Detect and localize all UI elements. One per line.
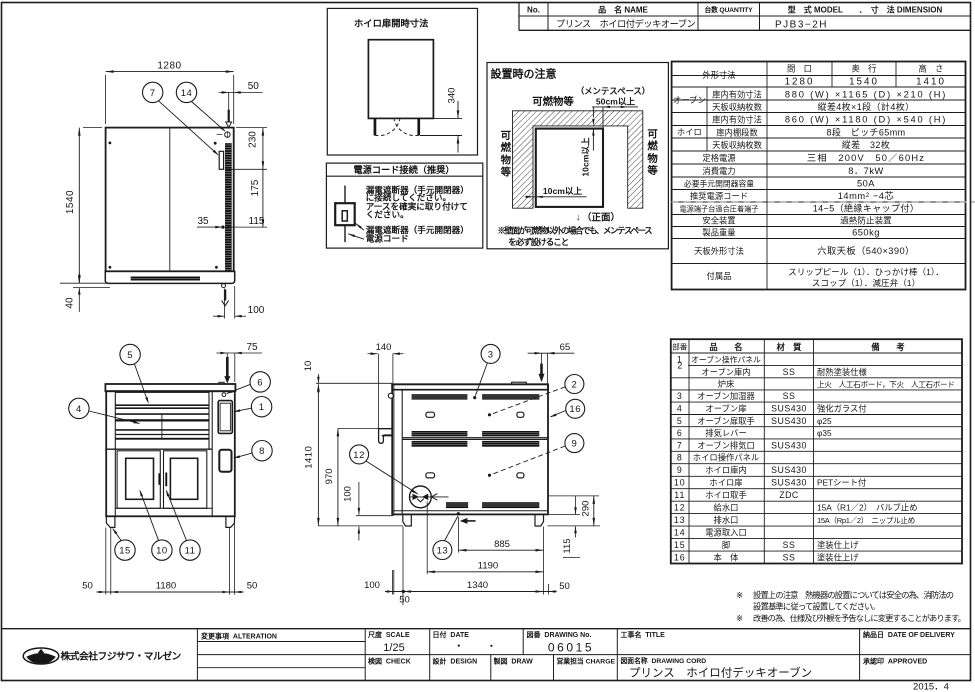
svg-text:プリンス ホイロ付デッキオーブン: プリンス ホイロ付デッキオーブン: [629, 666, 812, 680]
svg-text:等: 等: [500, 166, 512, 179]
svg-text:1540: 1540: [65, 190, 76, 214]
svg-text:5: 5: [677, 416, 683, 426]
svg-text:天板収納枚数: 天板収納枚数: [712, 140, 762, 150]
svg-text:175: 175: [250, 179, 261, 196]
svg-text:可燃物等: 可燃物等: [532, 95, 574, 108]
svg-text:13: 13: [674, 515, 686, 525]
svg-text:燃: 燃: [647, 140, 658, 153]
svg-text:ホイロ操作パネル: ホイロ操作パネル: [693, 453, 759, 463]
svg-text:SS: SS: [783, 540, 796, 550]
svg-text:可: 可: [647, 129, 658, 141]
svg-text:↓: ↓: [576, 213, 581, 224]
svg-text:図番 DRAWING No.: 図番 DRAWING No.: [527, 630, 592, 639]
svg-text:100: 100: [248, 305, 265, 316]
svg-text:1280: 1280: [157, 60, 181, 71]
svg-text:50: 50: [82, 581, 93, 592]
svg-text:材 質: 材 質: [776, 342, 803, 352]
svg-text:1410: 1410: [916, 77, 946, 88]
svg-text:工事名 TITLE: 工事名 TITLE: [621, 630, 666, 639]
svg-text:等: 等: [646, 164, 658, 177]
svg-text:日付 DATE: 日付 DATE: [433, 630, 470, 639]
svg-text:消費電力: 消費電力: [702, 166, 735, 176]
svg-text:物: 物: [501, 153, 512, 166]
svg-text:必要手元開閉器容量: 必要手元開閉器容量: [684, 179, 754, 189]
svg-text:ホイロ扉: ホイロ扉: [709, 478, 742, 488]
svg-text:SS: SS: [783, 367, 796, 377]
svg-text:部番: 部番: [672, 342, 688, 352]
svg-text:140: 140: [376, 342, 392, 353]
svg-text:φ25: φ25: [817, 416, 832, 426]
svg-text:営業担当 CHARGE: 営業担当 CHARGE: [557, 657, 616, 666]
svg-text:上火 人工石ボード，下火 人工石ボード: 上火 人工石ボード，下火 人工石ボード: [817, 380, 954, 389]
svg-text:8段 ピッチ65mm: 8段 ピッチ65mm: [826, 127, 905, 138]
svg-text:14: 14: [181, 88, 193, 99]
svg-text:プリンス ホイロ付デッキオーブン: プリンス ホイロ付デッキオーブン: [556, 18, 695, 29]
svg-text:φ35: φ35: [817, 428, 832, 438]
svg-text:PETシート付: PETシート付: [817, 478, 866, 488]
svg-text:860 (W) ×1180 (D) ×540 (H): 860 (W) ×1180 (D) ×540 (H): [785, 115, 947, 125]
svg-text:推奨電源コード: 推奨電源コード: [690, 191, 748, 201]
svg-text:230: 230: [248, 131, 259, 148]
svg-text:台数 QUANTITY: 台数 QUANTITY: [704, 5, 753, 14]
svg-text:本 体: 本 体: [714, 553, 740, 563]
svg-text:株式会社フジサワ・マルゼン: 株式会社フジサワ・マルゼン: [61, 650, 182, 663]
svg-text:75: 75: [246, 342, 258, 353]
svg-text:ください。: ください。: [366, 209, 409, 219]
svg-text:06015: 06015: [548, 641, 594, 655]
svg-text:115: 115: [249, 216, 265, 227]
svg-text:ホイロ庫内: ホイロ庫内: [705, 465, 747, 475]
svg-text:可: 可: [501, 130, 512, 142]
svg-text:10: 10: [674, 478, 686, 488]
svg-text:型 式 MODEL ． 寸 法 DIMENSION: 型 式 MODEL ． 寸 法 DIMENSION: [788, 5, 943, 15]
svg-text:六取天板（540×390）: 六取天板（540×390）: [817, 245, 914, 256]
svg-text:三相 200V 50／60Hz: 三相 200V 50／60Hz: [807, 152, 925, 163]
svg-text:付属品: 付属品: [707, 271, 732, 281]
svg-text:6: 6: [257, 377, 263, 388]
svg-text:電源コード: 電源コード: [366, 233, 409, 244]
svg-text:650kg: 650kg: [852, 228, 880, 238]
svg-text:設計 DESIGN: 設計 DESIGN: [433, 657, 478, 666]
svg-text:ホイロ扉開時寸法: ホイロ扉開時寸法: [354, 18, 428, 29]
svg-text:高 さ: 高 さ: [919, 64, 944, 74]
svg-text:15: 15: [674, 540, 686, 550]
svg-text:1410: 1410: [304, 446, 315, 469]
svg-text:オーブン扉取手: オーブン扉取手: [697, 416, 755, 426]
svg-text:塗装仕上げ: 塗装仕上げ: [817, 553, 859, 563]
svg-text:燃: 燃: [501, 141, 512, 154]
svg-text:340: 340: [447, 88, 458, 104]
svg-text:庫内有効寸法: 庫内有効寸法: [712, 90, 762, 100]
svg-text:天板外形寸法: 天板外形寸法: [694, 246, 744, 256]
svg-text:縦差 32枚: 縦差 32枚: [842, 139, 890, 150]
svg-text:間 口: 間 口: [787, 64, 812, 74]
svg-text:※: ※: [736, 613, 743, 623]
svg-text:（メンテスペース）: （メンテスペース）: [576, 86, 650, 96]
svg-text:強化ガラス付: 強化ガラス付: [817, 404, 867, 414]
svg-text:50cm以上: 50cm以上: [596, 96, 636, 107]
svg-text:35: 35: [197, 216, 209, 227]
svg-text:10cm以上: 10cm以上: [580, 137, 591, 177]
svg-text:1340: 1340: [467, 580, 488, 591]
svg-text:備 考: 備 考: [871, 342, 904, 352]
svg-text:7: 7: [150, 88, 156, 99]
svg-text:12: 12: [353, 450, 365, 461]
svg-text:PJB3−2H: PJB3−2H: [775, 20, 828, 31]
svg-text:排水口: 排水口: [714, 515, 739, 525]
svg-text:50A: 50A: [857, 179, 875, 189]
svg-text:SUS430: SUS430: [771, 440, 807, 450]
svg-text:SS: SS: [783, 553, 796, 563]
svg-text:970: 970: [324, 468, 335, 484]
svg-text:No.: No.: [527, 6, 540, 15]
svg-text:50: 50: [247, 581, 258, 592]
svg-text:12: 12: [674, 503, 686, 513]
svg-text:2: 2: [677, 361, 682, 371]
svg-text:耐熱塗装仕様: 耐熱塗装仕様: [817, 367, 867, 377]
svg-text:（正面）: （正面）: [582, 212, 620, 224]
svg-text:3: 3: [677, 391, 683, 401]
svg-text:8．7kW: 8．7kW: [848, 166, 884, 176]
svg-text:15A（R1／2） バルブ止め: 15A（R1／2） バルブ止め: [817, 503, 918, 513]
svg-text:脚: 脚: [722, 540, 730, 550]
svg-text:10: 10: [156, 546, 168, 557]
svg-text:8: 8: [677, 453, 683, 463]
svg-text:SUS430: SUS430: [771, 416, 807, 426]
svg-text:庫内棚段数: 庫内棚段数: [716, 128, 758, 138]
svg-text:定格電源: 定格電源: [702, 153, 736, 163]
svg-text:納品日 DATE OF DELIVERY: 納品日 DATE OF DELIVERY: [863, 630, 955, 639]
svg-text:5: 5: [127, 350, 133, 361]
svg-text:製品重量: 製品重量: [702, 228, 735, 238]
svg-text:過熱防止装置: 過熱防止装置: [840, 215, 892, 226]
svg-text:電源端子台適合圧着端子: 電源端子台適合圧着端子: [679, 205, 758, 214]
svg-text:物: 物: [647, 152, 658, 165]
svg-text:図面名称 DRAWING CORD: 図面名称 DRAWING CORD: [621, 656, 707, 665]
svg-text:承認印 APPROVED: 承認印 APPROVED: [863, 657, 927, 666]
svg-text:50: 50: [248, 81, 260, 92]
svg-text:オーブン排気口: オーブン排気口: [697, 440, 755, 450]
svg-text:8: 8: [259, 446, 265, 457]
svg-text:11: 11: [185, 546, 196, 557]
svg-text:※: ※: [736, 590, 743, 600]
svg-text:塗装仕上げ: 塗装仕上げ: [817, 540, 859, 550]
svg-text:4: 4: [677, 404, 683, 414]
svg-text:ZDC: ZDC: [779, 490, 799, 500]
svg-text:13: 13: [437, 545, 449, 556]
svg-text:外形寸法: 外形寸法: [702, 70, 735, 80]
svg-text:SUS430: SUS430: [771, 404, 807, 414]
svg-text:奥 行: 奥 行: [852, 64, 877, 74]
svg-text:50: 50: [399, 595, 410, 606]
svg-text:9: 9: [572, 439, 578, 450]
svg-text:7: 7: [677, 440, 683, 450]
svg-text:縦差4枚×1段（計4枚）: 縦差4枚×1段（計4枚）: [817, 101, 914, 112]
svg-text:品 名: 品 名: [709, 342, 742, 352]
svg-text:オーブン加湿器: オーブン加湿器: [697, 391, 755, 401]
svg-text:製図 DRAW: 製図 DRAW: [493, 657, 534, 666]
svg-text:1/25: 1/25: [383, 642, 404, 654]
svg-text:給水口: 給水口: [714, 503, 739, 513]
svg-text:設置基準に従って設置してください。: 設置基準に従って設置してください。: [753, 602, 879, 612]
svg-text:15: 15: [119, 546, 131, 557]
svg-text:SUS430: SUS430: [771, 465, 807, 475]
svg-text:炉床: 炉床: [718, 379, 735, 389]
svg-text:2015．4: 2015．4: [913, 682, 949, 692]
svg-text:ホイロ取手: ホイロ取手: [705, 490, 747, 500]
svg-text:4: 4: [76, 404, 82, 415]
svg-text:880 (W) ×1165 (D) ×210 (H): 880 (W) ×1165 (D) ×210 (H): [785, 90, 947, 100]
svg-text:3: 3: [488, 349, 494, 360]
svg-text:排気レバー: 排気レバー: [705, 428, 747, 438]
svg-text:ホイロ: ホイロ: [677, 127, 702, 137]
svg-text:10: 10: [303, 361, 314, 372]
svg-text:40: 40: [64, 297, 75, 309]
svg-text:SS: SS: [783, 391, 796, 401]
svg-text:設置時の注意: 設置時の注意: [491, 67, 557, 81]
svg-text:電源コード接続（推奨）: 電源コード接続（推奨）: [353, 164, 454, 175]
svg-text:オーブン操作パネル: オーブン操作パネル: [691, 354, 761, 364]
svg-text:1190: 1190: [478, 560, 498, 571]
svg-text:尺度 SCALE: 尺度 SCALE: [367, 630, 410, 639]
svg-text:安全装置: 安全装置: [702, 216, 735, 226]
svg-text:変更事項 ALTERATION: 変更事項 ALTERATION: [201, 631, 277, 640]
svg-text:115: 115: [562, 538, 573, 553]
svg-text:65: 65: [560, 342, 571, 353]
svg-text:設置上の注意 熱機器の設置については安全の為、消防法の: 設置上の注意 熱機器の設置については安全の為、消防法の: [753, 590, 954, 600]
svg-text:1: 1: [259, 402, 265, 413]
svg-text:品 名 NAME: 品 名 NAME: [598, 5, 648, 15]
svg-text:9: 9: [677, 465, 683, 475]
svg-text:1540: 1540: [849, 77, 879, 88]
svg-text:10cm以上: 10cm以上: [543, 185, 583, 196]
svg-text:14: 14: [674, 528, 686, 538]
svg-text:2: 2: [572, 379, 578, 390]
svg-text:天板収納枚数: 天板収納枚数: [712, 102, 762, 112]
svg-text:15A（Rp1／2） ニップル止め: 15A（Rp1／2） ニップル止め: [817, 515, 915, 525]
svg-text:検図 CHECK: 検図 CHECK: [368, 657, 411, 666]
svg-text:6: 6: [677, 428, 683, 438]
svg-text:※壁面が可燃物以外の場合でも、メンテスペース: ※壁面が可燃物以外の場合でも、メンテスペース: [497, 226, 652, 236]
svg-text:885: 885: [494, 539, 510, 550]
svg-text:100: 100: [342, 486, 353, 502]
svg-text:SUS430: SUS430: [771, 478, 807, 488]
svg-text:290: 290: [580, 501, 591, 517]
svg-text:100: 100: [364, 580, 380, 591]
svg-text:庫内有効寸法: 庫内有効寸法: [712, 115, 762, 125]
svg-text:オーブン扉: オーブン扉: [706, 404, 747, 414]
svg-text:スコップ（1）．減圧弁（1）: スコップ（1）．減圧弁（1）: [812, 277, 920, 288]
svg-text:50: 50: [559, 581, 570, 592]
svg-text:14−5（絶縁キャップ付）: 14−5（絶縁キャップ付）: [813, 203, 919, 214]
svg-text:オーブン: オーブン: [673, 95, 706, 105]
svg-text:電源取入口: 電源取入口: [705, 528, 747, 538]
svg-text:オーブン庫内: オーブン庫内: [701, 367, 750, 377]
svg-text:1280: 1280: [785, 77, 815, 88]
svg-text:1180: 1180: [156, 581, 176, 592]
svg-text:改善の為、仕様及び外観を予告なしに変更することがあります。: 改善の為、仕様及び外観を予告なしに変更することがあります。: [753, 613, 965, 623]
svg-text:16: 16: [569, 404, 581, 415]
svg-text:11: 11: [674, 490, 685, 500]
svg-text:16: 16: [674, 553, 686, 563]
svg-text:を必ず設けること: を必ず設けること: [508, 237, 569, 247]
svg-text:スリップピール（1）．ひっかけ棒（1）．: スリップピール（1）．ひっかけ棒（1）．: [788, 266, 944, 277]
